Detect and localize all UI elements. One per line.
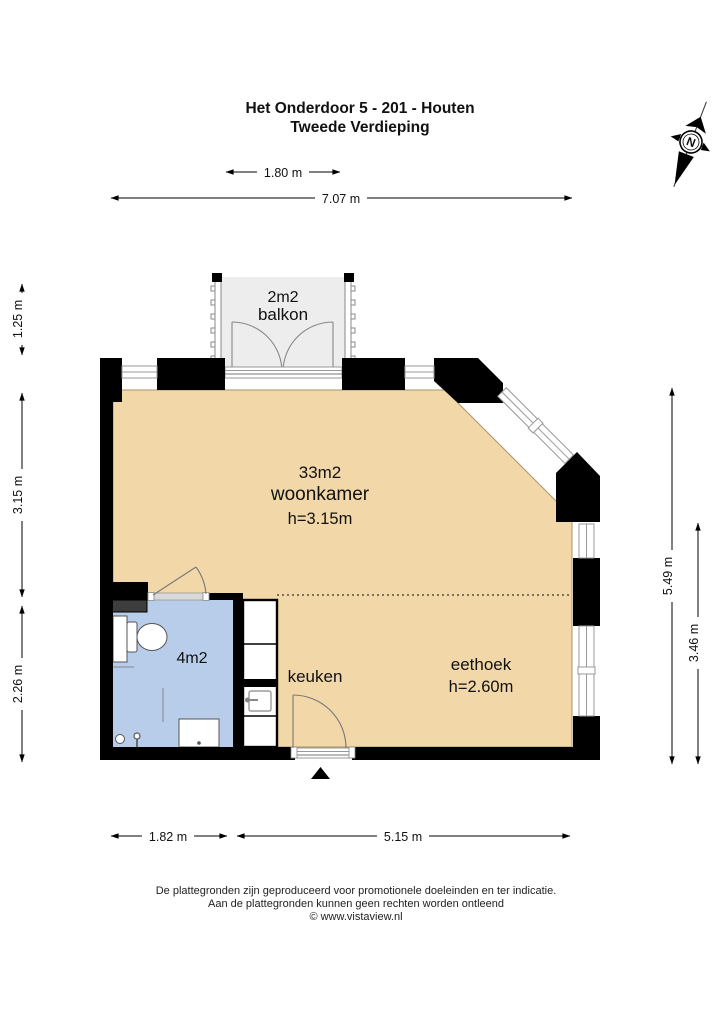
woonkamer-height-label: h=3.15m	[288, 510, 353, 528]
page-title: Het Onderdoor 5 - 201 - Houten	[245, 100, 474, 117]
dim-balcony-depth: 1.25 m	[11, 300, 25, 338]
woonkamer-area-label: 33m2	[299, 463, 342, 482]
floorplan-page: Het Onderdoor 5 - 201 - Houten Tweede Ve…	[0, 0, 724, 1024]
page-subtitle: Tweede Verdieping	[290, 119, 429, 136]
balkon-name-label: balkon	[258, 305, 308, 324]
dim-woonkamer-depth: 3.15 m	[11, 476, 25, 514]
entrance-marker-icon	[311, 767, 330, 779]
balkon-area-label: 2m2	[267, 289, 298, 306]
window-top-left-icon	[122, 366, 157, 378]
dim-right-inner: 3.46 m	[687, 624, 701, 662]
compass-icon: N	[654, 94, 724, 194]
footer-disclaimer-line1: De plattegronden zijn geproduceerd voor …	[156, 885, 557, 897]
window-diagonal-icon	[497, 387, 574, 464]
balcony-post-left	[212, 273, 222, 282]
floorplan-drawing: Het Onderdoor 5 - 201 - Houten Tweede Ve…	[0, 0, 724, 1024]
keuken-name-label: keuken	[288, 667, 343, 686]
eethoek-height-label: h=2.60m	[449, 678, 514, 696]
dim-bottom-left: 1.82 m	[149, 830, 187, 844]
dim-bottom-right: 5.15 m	[384, 830, 422, 844]
window-right-upper-icon	[579, 524, 594, 558]
kitchen-counter	[243, 600, 277, 747]
dim-balcony-width: 1.80 m	[264, 166, 302, 180]
badkamer-area-label: 4m2	[176, 650, 207, 667]
dim-right-outer: 5.49 m	[661, 557, 675, 595]
kitchen-sink-icon	[245, 691, 271, 711]
dim-total-width: 7.07 m	[322, 192, 360, 206]
footer-copyright: © www.vistaview.nl	[309, 911, 402, 923]
balcony-post-right	[344, 273, 354, 282]
washer-icon	[179, 719, 219, 747]
window-top-right-icon	[405, 366, 434, 378]
footer-disclaimer-line2: Aan de plattegronden kunnen geen rechten…	[208, 898, 504, 910]
woonkamer-name-label: woonkamer	[270, 484, 370, 505]
bathroom	[100, 567, 243, 747]
eethoek-name-label: eethoek	[451, 655, 512, 674]
dim-lower-depth: 2.26 m	[11, 665, 25, 703]
window-right-lower-icon	[578, 626, 595, 716]
